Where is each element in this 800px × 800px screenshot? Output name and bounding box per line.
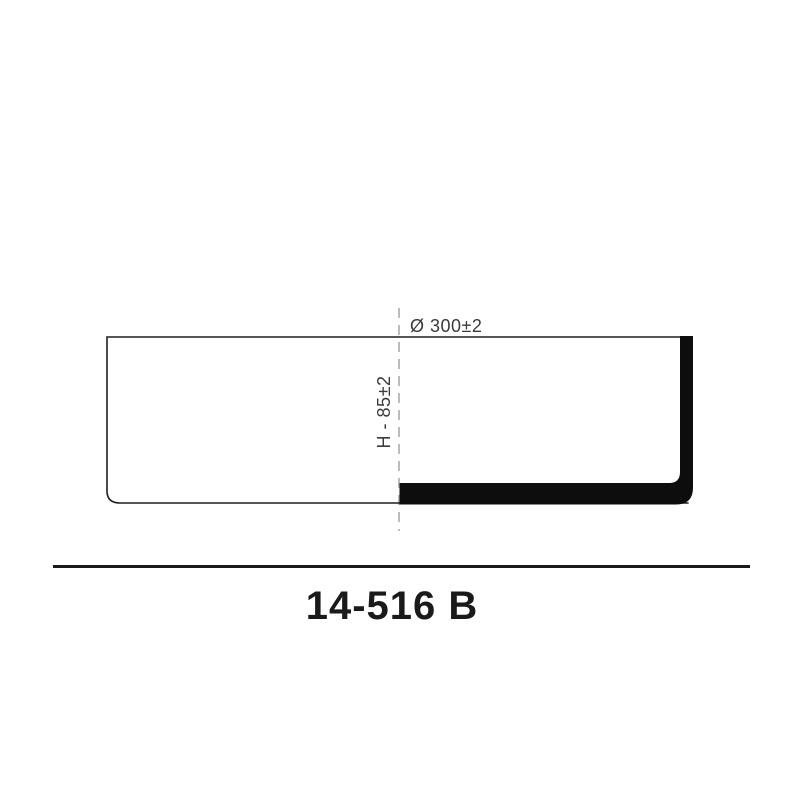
drawing-sheet: Ø 300±2 H - 85±2 14-516 B	[0, 0, 800, 800]
diameter-dimension-label: Ø 300±2	[410, 316, 482, 336]
plate-profile-outline	[107, 337, 688, 503]
drawing-number-title: 14-516 B	[306, 584, 479, 628]
technical-drawing-svg: Ø 300±2 H - 85±2 14-516 B	[0, 0, 800, 800]
section-cut-fill	[400, 336, 694, 505]
height-dimension-label: H - 85±2	[374, 376, 394, 449]
